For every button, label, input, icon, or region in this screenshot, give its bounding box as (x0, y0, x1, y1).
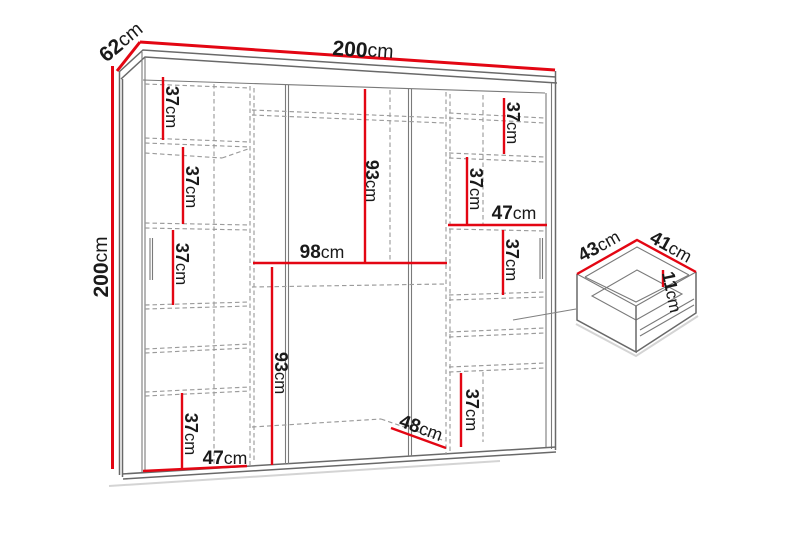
right-shelf-4-label: 37cm (462, 389, 482, 431)
drawer-detail: 43cm 41cm 11cm (513, 226, 698, 356)
drawer-leader-line (513, 309, 576, 320)
dim-drawer-width: 43cm (574, 226, 623, 266)
right-shelf-1-label: 37cm (503, 102, 523, 144)
center-bottom-width-label: 48cm (396, 410, 445, 445)
right-shelf-3-label: 37cm (502, 239, 522, 281)
left-shelf-3-label: 37cm (172, 243, 192, 285)
left-shelf-4-label: 37cm (181, 413, 201, 455)
dim-right-shelf-3: 37cm (502, 230, 522, 295)
dim-center-bottom-width: 48cm (391, 410, 446, 448)
dim-left-shelf-3: 37cm (172, 230, 192, 305)
dim-drawer-depth: 41cm (646, 227, 695, 267)
drawer-width-label: 43cm (574, 226, 623, 266)
wardrobe-dimension-diagram: 200cm 62cm 200cm 37cm 37cm 37cm 37cm 47c… (0, 0, 800, 533)
door-handle-right (540, 238, 543, 279)
right-width-label: 47cm (492, 203, 537, 224)
diagram-canvas: 200cm 62cm 200cm 37cm 37cm 37cm 37cm 47c… (0, 0, 800, 533)
center-upper-height-label: 93cm (362, 160, 382, 202)
dim-right-width: 47cm (448, 203, 547, 226)
dim-left-shelf-1: 37cm (162, 77, 182, 140)
center-lower-height-label: 93cm (271, 352, 291, 394)
left-width-label: 47cm (203, 448, 248, 469)
interior-drawer-fronts (449, 292, 545, 372)
dim-wardrobe-height: 200cm (90, 66, 113, 469)
drawer-height-label: 11cm (658, 270, 686, 315)
drawer-depth-label: 41cm (646, 227, 695, 267)
dim-right-shelf-2: 37cm (466, 157, 486, 225)
dim-left-shelf-4: 37cm (181, 393, 201, 470)
dim-left-shelf-2: 37cm (182, 147, 202, 224)
left-shelf-1-label: 37cm (162, 86, 182, 128)
right-shelf-2-label: 37cm (466, 168, 486, 210)
dim-right-shelf-4: 37cm (461, 373, 482, 447)
door-handle-left (150, 238, 153, 280)
left-shelf-2-label: 37cm (182, 166, 202, 208)
dim-right-shelf-1: 37cm (503, 98, 523, 154)
floor-shadow (109, 461, 500, 486)
dim-drawer-height: 11cm (658, 270, 686, 315)
center-width-label: 98cm (300, 242, 345, 263)
dim-center-width: 98cm (253, 242, 447, 264)
wardrobe-height-label: 200cm (90, 236, 113, 297)
interior-shelves (145, 84, 545, 468)
wardrobe-width-label: 200cm (332, 36, 394, 63)
